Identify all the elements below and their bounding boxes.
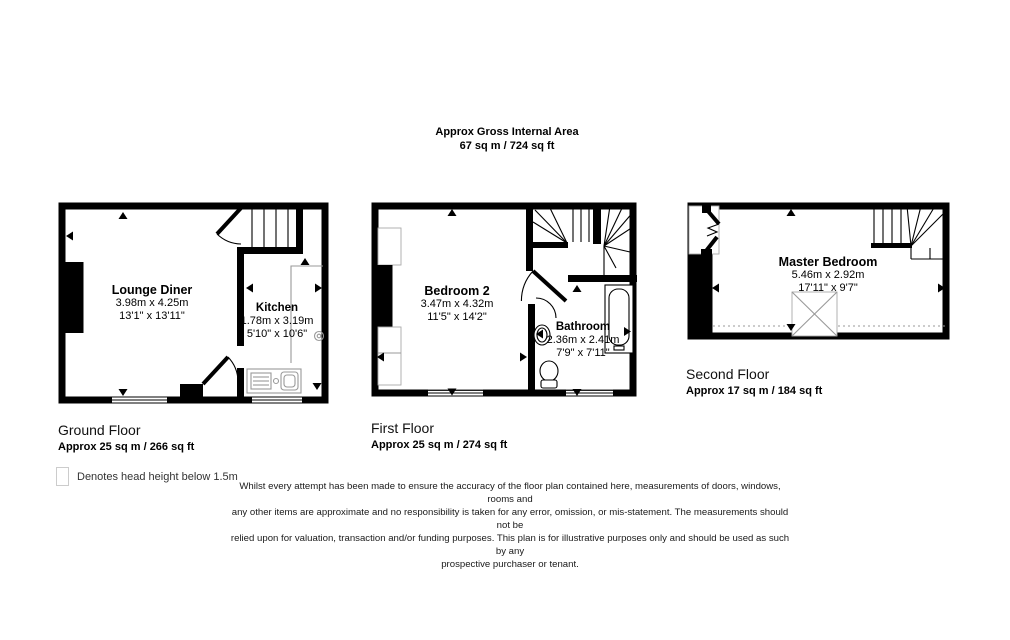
window-icon	[252, 396, 302, 403]
room-dim-imperial: 11'5" x 14'2"	[421, 311, 494, 324]
disclaimer-line: relied upon for valuation, transaction a…	[230, 532, 790, 558]
floor-area: Approx 25 sq m / 274 sq ft	[371, 439, 507, 451]
floor-name: Second Floor	[686, 366, 822, 382]
room-label-bathroom: Bathroom 2.36m x 2.41m 7'9" x 7'11"	[547, 321, 620, 360]
internal-wall	[528, 304, 535, 393]
disclaimer-line: prospective purchaser or tenant.	[230, 558, 790, 571]
first-floor-plan	[372, 206, 638, 396]
room-name: Bathroom	[547, 321, 620, 334]
floor-area: Approx 17 sq m / 184 sq ft	[686, 385, 822, 397]
disclaimer-line: any other items are approximate and no r…	[230, 506, 790, 532]
legend: Denotes head height below 1.5m	[56, 467, 238, 486]
room-dim-imperial: 17'11" x 9'7"	[779, 282, 878, 295]
floor-caption-first: First Floor Approx 25 sq m / 274 sq ft	[371, 420, 507, 451]
room-name: Kitchen	[241, 302, 314, 315]
room-dim-metric: 3.47m x 4.32m	[421, 298, 494, 311]
chimney-breast	[59, 262, 84, 333]
floor-name: First Floor	[371, 420, 507, 436]
window-icon	[428, 390, 483, 396]
room-dim-metric: 5.46m x 2.92m	[779, 269, 878, 282]
title-line-1: Approx Gross Internal Area	[435, 126, 578, 140]
room-dim-imperial: 7'9" x 7'11"	[547, 347, 620, 360]
floor-name: Ground Floor	[58, 422, 194, 438]
toilet-icon	[540, 361, 558, 388]
wardrobe-recess	[378, 228, 401, 265]
room-label-lounge-diner: Lounge Diner 3.98m x 4.25m 13'1" x 13'11…	[112, 284, 193, 323]
thick-wall	[688, 252, 713, 338]
room-dim-metric: 3.98m x 4.25m	[112, 297, 193, 310]
room-name: Bedroom 2	[421, 285, 494, 298]
internal-wall	[526, 206, 533, 271]
room-label-master-bedroom: Master Bedroom 5.46m x 2.92m 17'11" x 9'…	[779, 256, 878, 295]
legend-text: Denotes head height below 1.5m	[77, 471, 238, 483]
room-label-bedroom-2: Bedroom 2 3.47m x 4.32m 11'5" x 14'2"	[421, 285, 494, 324]
room-label-kitchen: Kitchen 1.78m x 3.19m 5'10" x 10'6"	[241, 302, 314, 341]
title-line-2: 67 sq m / 724 sq ft	[435, 140, 578, 154]
floor-caption-ground: Ground Floor Approx 25 sq m / 266 sq ft	[58, 422, 194, 453]
floor-caption-second: Second Floor Approx 17 sq m / 184 sq ft	[686, 366, 822, 397]
head-height-box	[792, 292, 837, 336]
room-dim-imperial: 13'1" x 13'11"	[112, 310, 193, 323]
disclaimer: Whilst every attempt has been made to en…	[230, 480, 790, 571]
internal-wall	[237, 368, 244, 398]
room-name: Master Bedroom	[779, 256, 878, 269]
disclaimer-line: Whilst every attempt has been made to en…	[230, 480, 790, 506]
room-dim-metric: 2.36m x 2.41m	[547, 334, 620, 347]
room-dim-metric: 1.78m x 3.19m	[241, 315, 314, 328]
floorplan-page: Approx Gross Internal Area 67 sq m / 724…	[0, 0, 1010, 640]
floor-area: Approx 25 sq m / 266 sq ft	[58, 441, 194, 453]
window-icon	[566, 390, 613, 396]
chimney-breast	[372, 265, 393, 327]
cupboard-doors-icon	[689, 204, 719, 260]
window-icon	[112, 396, 167, 403]
room-dim-imperial: 5'10" x 10'6"	[241, 328, 314, 341]
page-title: Approx Gross Internal Area 67 sq m / 724…	[435, 126, 578, 153]
head-height-legend-icon	[56, 467, 69, 486]
room-name: Lounge Diner	[112, 284, 193, 297]
